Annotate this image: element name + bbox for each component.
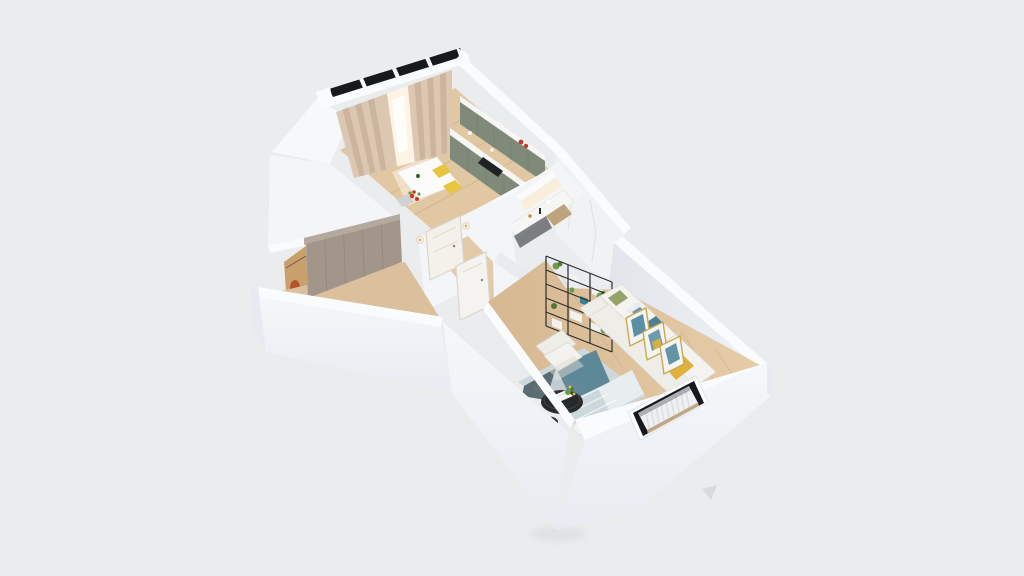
red-bottle xyxy=(524,144,528,148)
yellow-flowers xyxy=(573,393,576,396)
toiletry-bottle xyxy=(528,214,532,218)
floorplan-canvas xyxy=(0,0,1024,576)
wall-sconce xyxy=(465,225,468,228)
door-handle xyxy=(453,245,456,248)
floorplan-render xyxy=(0,0,1024,576)
counter-bowl xyxy=(468,131,472,135)
lr-right-wall-end xyxy=(767,363,772,397)
wall-sconce xyxy=(419,239,422,242)
wine-bottle xyxy=(416,174,420,178)
table-plant xyxy=(565,389,571,395)
red-bottle xyxy=(519,140,524,145)
red-flowers xyxy=(410,194,414,198)
door-handle xyxy=(481,279,483,281)
